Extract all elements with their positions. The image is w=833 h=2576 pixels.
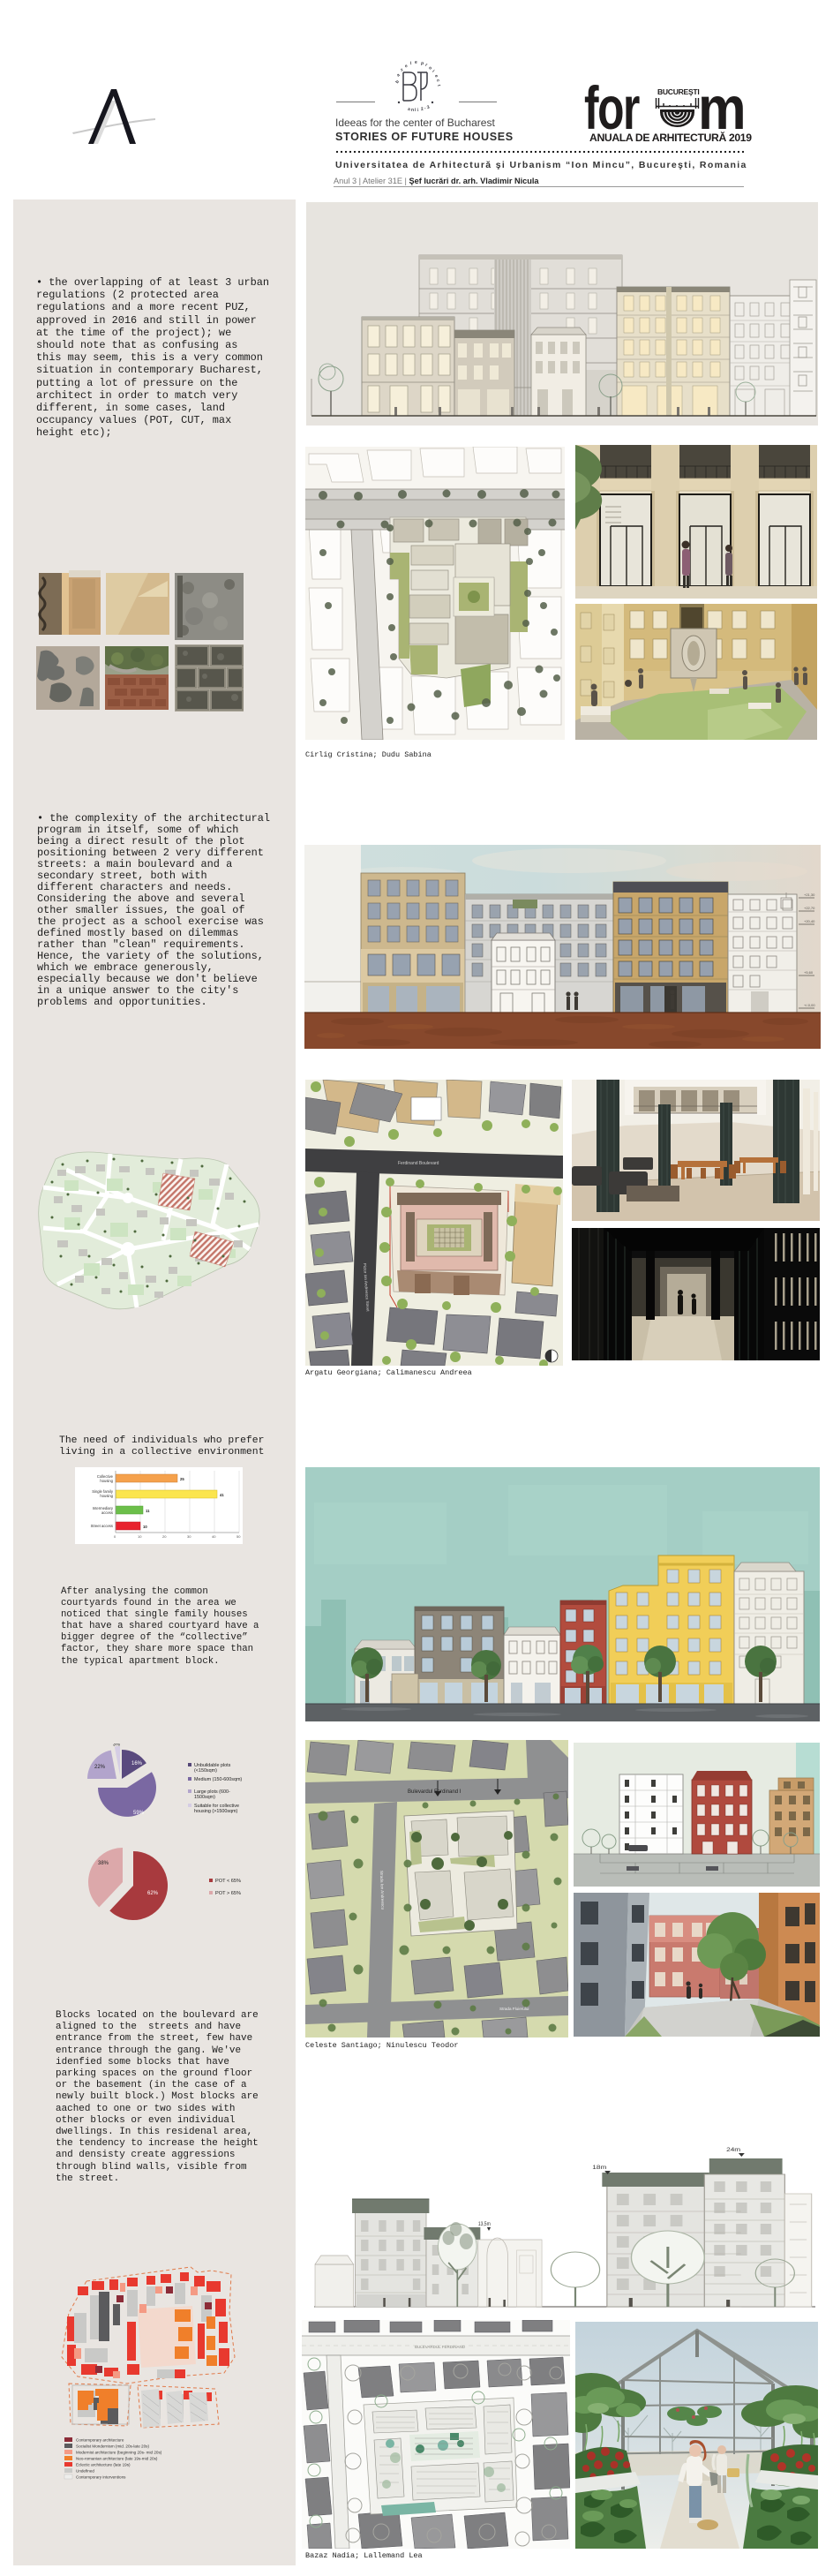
svg-text:Undefined: Undefined	[76, 2469, 94, 2474]
svg-text:+5,60: +5,60	[804, 970, 814, 975]
svg-text:Socialist Mondernism (mid. 20s: Socialist Mondernism (mid. 20s-late 20s)	[76, 2444, 149, 2449]
svg-text:Modernist architecture (beginn: Modernist architecture (beginning 20s- m…	[76, 2451, 162, 2455]
svg-text:a: a	[396, 72, 401, 79]
svg-text:BUCUREŞTI: BUCUREŞTI	[657, 87, 699, 96]
svg-text:13,5m: 13,5m	[478, 2222, 491, 2227]
svg-text:(<150sqm): (<150sqm)	[194, 1768, 217, 1774]
svg-text:Eclectic architecture (late 19: Eclectic architecture (late 19s)	[76, 2463, 131, 2467]
svg-text:e: e	[433, 73, 439, 79]
svg-text:50: 50	[236, 1534, 241, 1539]
svg-text:Strada Fluierului: Strada Fluierului	[499, 2007, 529, 2011]
svg-text:z: z	[400, 67, 404, 73]
svg-text:3%: 3%	[113, 1744, 120, 1748]
svg-text:r: r	[424, 63, 428, 68]
svg-text:Street access: Street access	[91, 1524, 113, 1528]
svg-text:i: i	[431, 69, 436, 74]
svg-text:l: l	[410, 61, 413, 66]
svg-text:10: 10	[143, 1525, 147, 1529]
svg-text:n: n	[411, 108, 414, 113]
svg-text:i: i	[415, 108, 416, 113]
svg-text:Contemporary architecture: Contemporary architecture	[76, 2438, 124, 2443]
svg-text:30: 30	[187, 1534, 191, 1539]
svg-text:+/-0,00: +/-0,00	[804, 1003, 815, 1007]
svg-text:11: 11	[146, 1509, 150, 1513]
svg-text:+22,70: +22,70	[804, 906, 815, 910]
svg-text:Bulevardul Ferdinand I: Bulevardul Ferdinand I	[408, 1789, 462, 1795]
svg-text:24m: 24m	[726, 2146, 740, 2152]
svg-text:POT > 65%: POT > 65%	[215, 1891, 241, 1896]
svg-text:22%: 22%	[94, 1765, 106, 1770]
svg-text:c: c	[435, 79, 441, 83]
svg-text:59%: 59%	[133, 1811, 145, 1816]
svg-text:25: 25	[180, 1477, 184, 1481]
svg-text:t: t	[436, 84, 441, 87]
svg-text:housing: housing	[100, 1479, 113, 1483]
svg-text:10: 10	[138, 1534, 142, 1539]
svg-text:a: a	[407, 107, 410, 112]
svg-text:62%: 62%	[147, 1891, 159, 1896]
svg-text:Neo-romanian architecture (la: Neo-romanian architecture (late 19s-mid …	[76, 2457, 158, 2461]
svg-text:41: 41	[220, 1493, 224, 1497]
svg-text:b: b	[394, 79, 401, 85]
svg-text:20: 20	[162, 1534, 167, 1539]
svg-text:40: 40	[212, 1534, 216, 1539]
svg-text:access: access	[101, 1510, 113, 1515]
svg-text:Medium (150-600sqm): Medium (150-600sqm)	[194, 1777, 242, 1782]
svg-text:e: e	[404, 64, 409, 70]
svg-text:housing (>1500sqm): housing (>1500sqm)	[194, 1809, 237, 1814]
svg-text:16%: 16%	[131, 1761, 143, 1766]
svg-text:18m: 18m	[592, 2164, 606, 2170]
svg-text:housing: housing	[100, 1494, 113, 1498]
svg-text:o: o	[428, 65, 433, 72]
svg-text:1500sqm): 1500sqm)	[194, 1795, 215, 1800]
svg-text:+20,40: +20,40	[804, 919, 815, 923]
svg-text:i: i	[417, 108, 420, 113]
svg-text:Ferdinand Boulevard: Ferdinand Boulevard	[398, 1161, 439, 1166]
svg-text:e: e	[415, 60, 417, 65]
svg-text:POT < 65%: POT < 65%	[215, 1879, 241, 1884]
svg-text:Contemporary interventions: Contemporary interventions	[76, 2475, 126, 2480]
svg-text:+21,30: +21,30	[804, 893, 815, 897]
svg-text:38%: 38%	[98, 1861, 109, 1866]
svg-text:BULEVARDUL FERDINAND: BULEVARDUL FERDINAND	[415, 2345, 466, 2349]
svg-text:p: p	[420, 61, 424, 66]
svg-text:3: 3	[426, 105, 431, 111]
